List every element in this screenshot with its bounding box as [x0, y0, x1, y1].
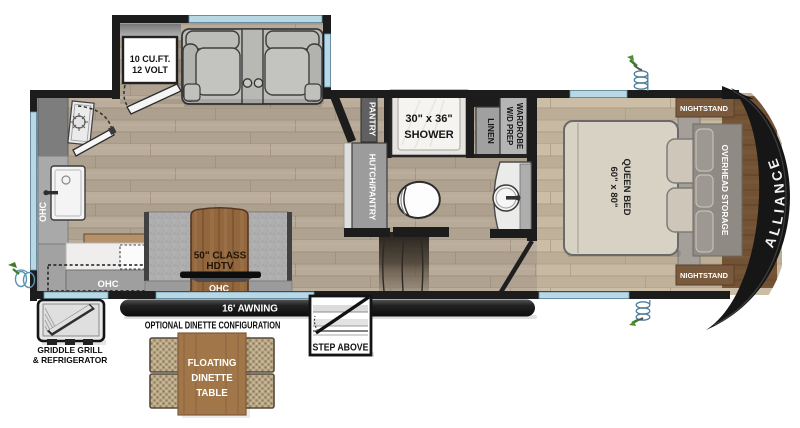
svg-text:10 CU.FT.: 10 CU.FT. [130, 54, 171, 64]
svg-text:12 VOLT: 12 VOLT [132, 65, 168, 75]
svg-text:WARDROBE: WARDROBE [515, 103, 524, 149]
svg-text:PANTRY: PANTRY [368, 102, 378, 137]
svg-text:OVERHEAD STORAGE: OVERHEAD STORAGE [720, 144, 730, 235]
svg-text:QUEEN BED: QUEEN BED [621, 158, 632, 215]
svg-text:FLOATING: FLOATING [188, 358, 237, 369]
svg-text:SHOWER: SHOWER [404, 129, 454, 141]
svg-text:OHC: OHC [38, 202, 48, 223]
svg-text:LINEN: LINEN [486, 118, 496, 144]
svg-text:DINETTE: DINETTE [191, 373, 233, 384]
svg-text:GRIDDLE GRILL: GRIDDLE GRILL [37, 345, 102, 355]
svg-text:NIGHTSTAND: NIGHTSTAND [680, 104, 729, 113]
svg-text:TABLE: TABLE [196, 388, 228, 399]
svg-text:STEP ABOVE: STEP ABOVE [313, 342, 369, 354]
svg-text:& REFRIGERATOR: & REFRIGERATOR [33, 355, 108, 365]
svg-text:HDTV: HDTV [206, 261, 234, 272]
svg-text:OHC: OHC [97, 279, 118, 290]
svg-text:W/D PREP: W/D PREP [505, 107, 514, 146]
svg-text:NIGHTSTAND: NIGHTSTAND [680, 271, 729, 280]
svg-text:60" x 80": 60" x 80" [608, 166, 619, 207]
svg-text:30" x 36": 30" x 36" [405, 113, 452, 125]
svg-text:OPTIONAL DINETTE CONFIGURATION: OPTIONAL DINETTE CONFIGURATION [145, 319, 281, 330]
svg-text:HUTCH/PANTRY: HUTCH/PANTRY [368, 154, 378, 221]
svg-text:16' AWNING: 16' AWNING [222, 304, 278, 315]
svg-text:50" CLASS: 50" CLASS [194, 251, 247, 262]
